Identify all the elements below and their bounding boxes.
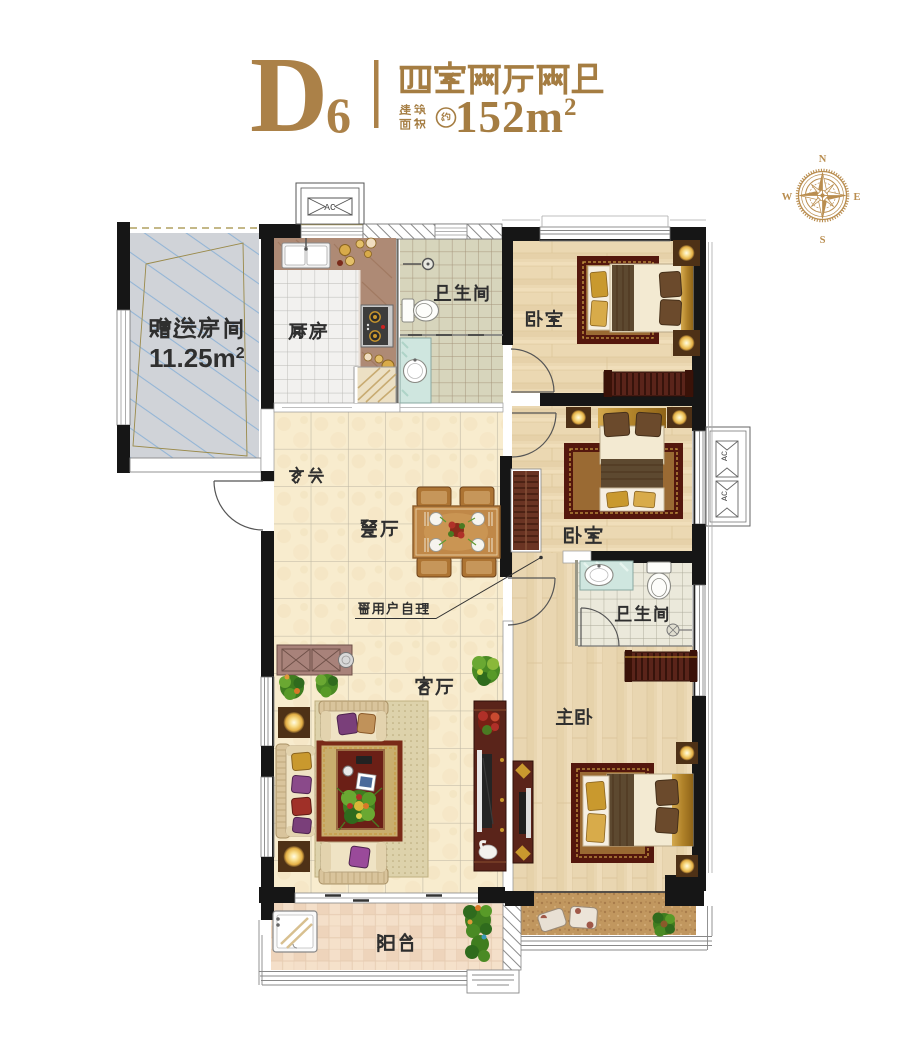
svg-text:E: E <box>853 192 860 203</box>
svg-text:D: D <box>250 36 328 155</box>
svg-text:AC: AC <box>720 451 730 461</box>
svg-text:6: 6 <box>326 87 351 143</box>
svg-text:S: S <box>820 235 826 246</box>
svg-text:AC: AC <box>324 202 336 213</box>
svg-text:11.25m2: 11.25m2 <box>149 343 245 373</box>
svg-text:AC: AC <box>720 491 730 501</box>
svg-text:152m2: 152m2 <box>455 92 578 142</box>
svg-text:W: W <box>782 192 793 203</box>
svg-text:N: N <box>819 154 827 165</box>
